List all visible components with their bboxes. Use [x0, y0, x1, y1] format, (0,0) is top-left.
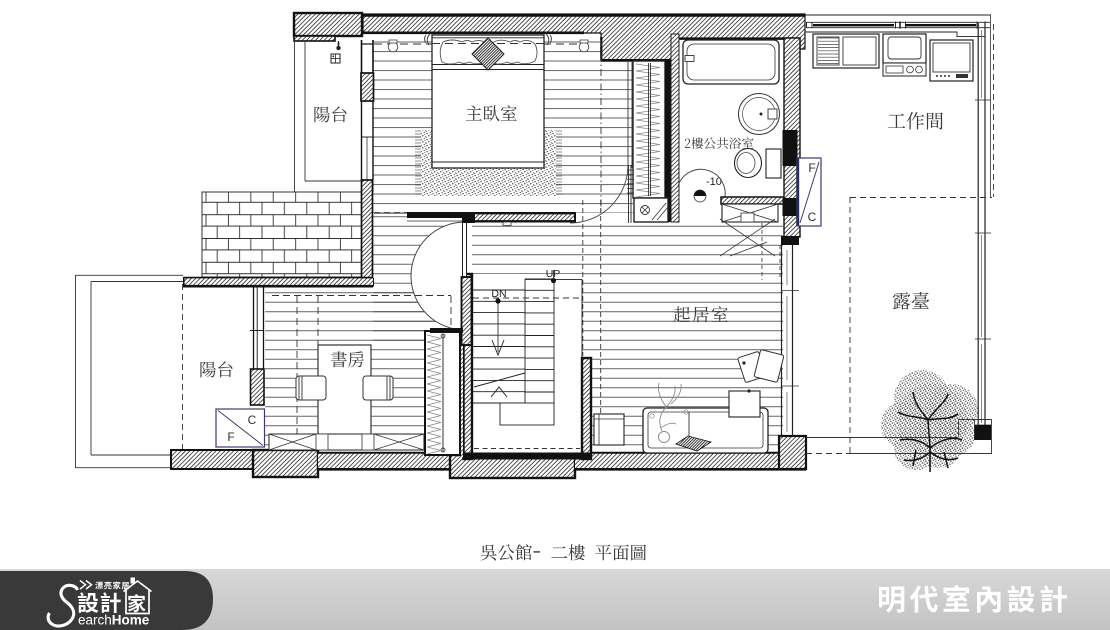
svg-text:earchHome: earchHome [78, 613, 150, 628]
